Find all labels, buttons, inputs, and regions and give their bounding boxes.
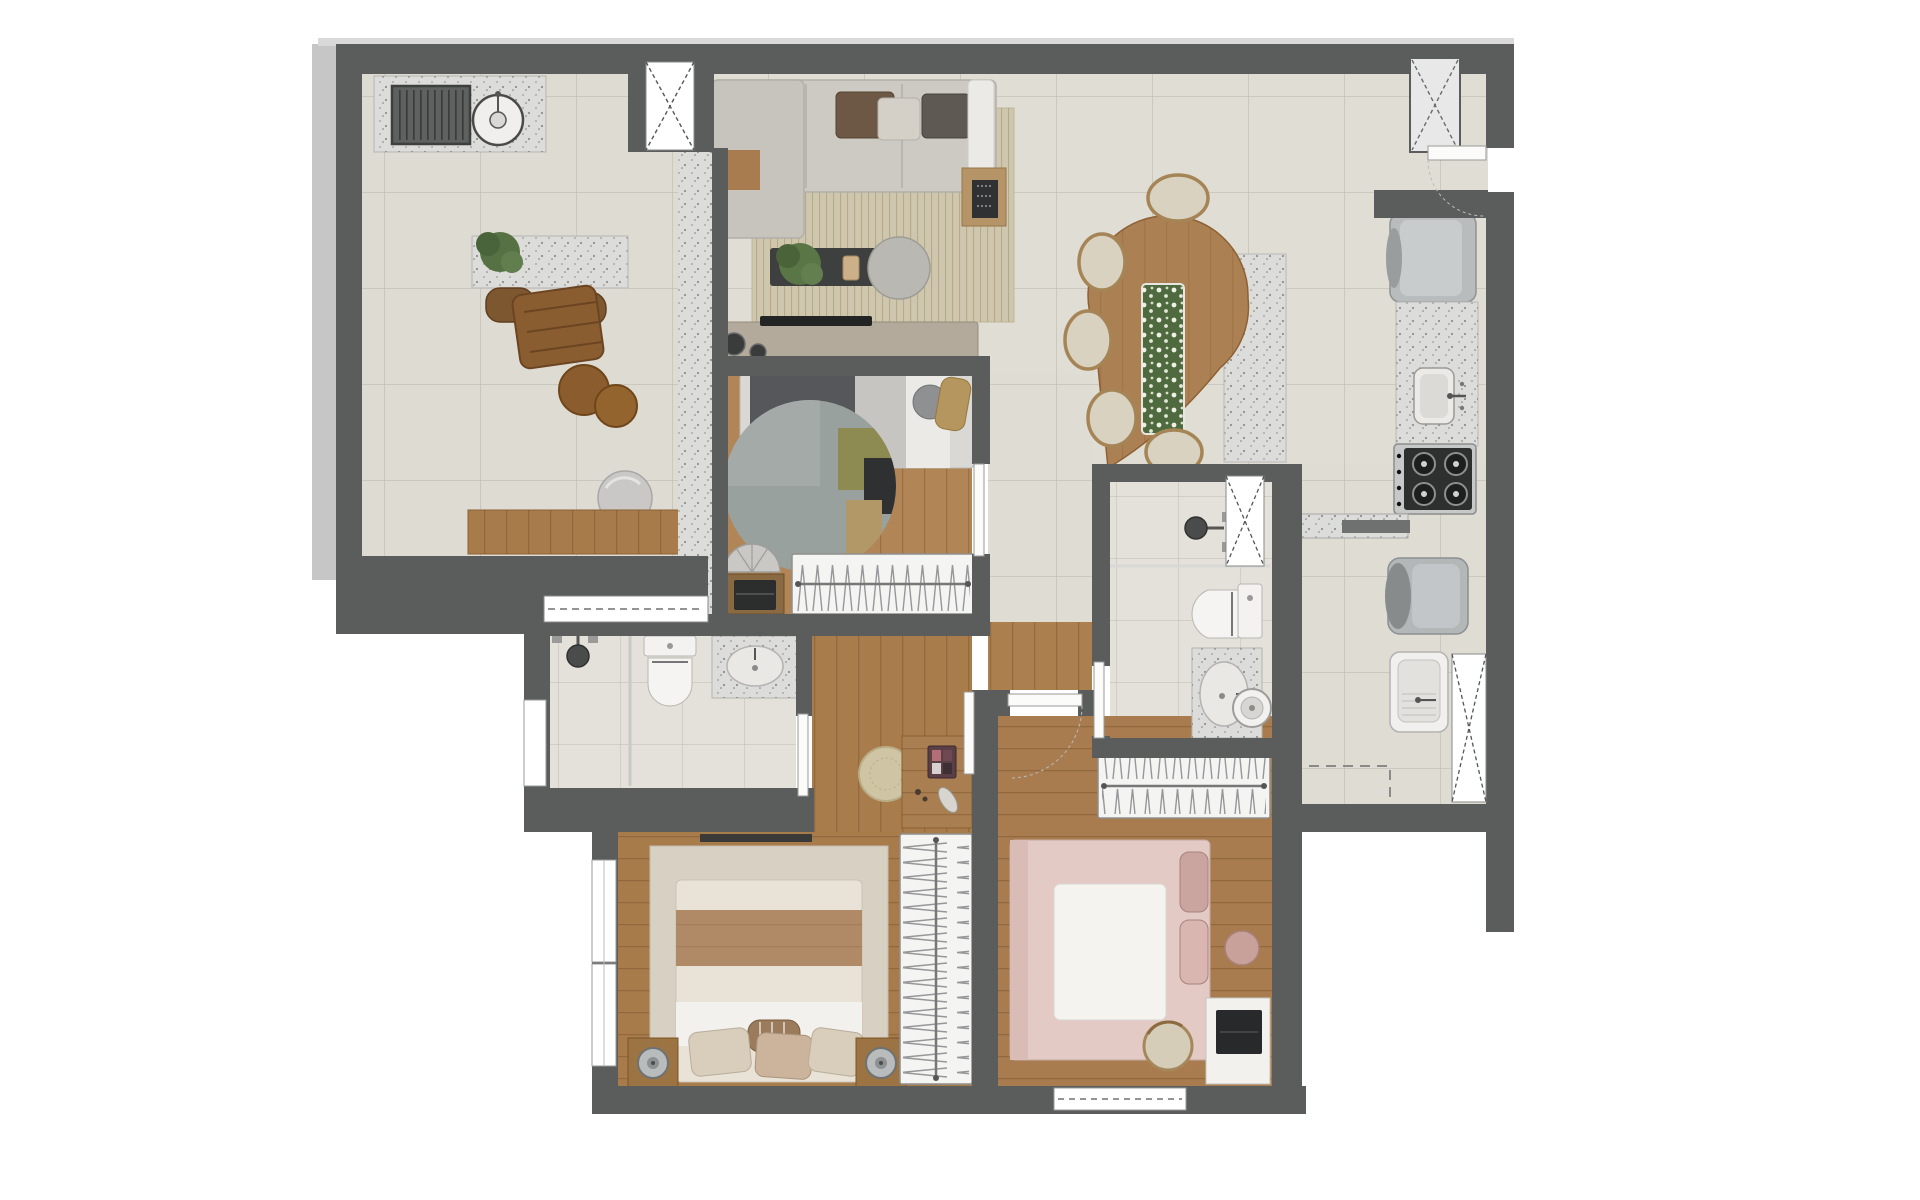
window-bathroom-1-side (524, 700, 546, 786)
laundry-tank-sink (1390, 652, 1448, 732)
bedroom2-chair (1144, 1022, 1192, 1070)
window-terrace-living (646, 62, 694, 150)
floor-plan-rendering (0, 0, 1920, 1200)
bedroom1-closet-rack (792, 554, 974, 614)
cooktop (1394, 444, 1476, 514)
refrigerator (1386, 214, 1476, 302)
window-bathroom-2 (1226, 476, 1264, 566)
door-leaf-master-suite (964, 692, 974, 774)
suite-dresser (902, 736, 972, 828)
terrace-deck-bench (468, 510, 680, 554)
terrace-armchair (511, 285, 604, 370)
floor-plan-stage (0, 0, 1920, 1200)
bbq-counter (374, 76, 546, 152)
kitchen-counter-sink (1396, 302, 1478, 446)
laundry-divider-counter (1296, 514, 1410, 538)
door-leaf-bathroom-2 (1094, 662, 1104, 738)
louver-window-bathroom-1 (544, 596, 708, 622)
master-nightstand-right (856, 1038, 906, 1088)
bedroom2-desk-laptop (1206, 998, 1270, 1084)
master-bed (676, 880, 865, 1082)
ottoman (868, 237, 930, 299)
bedroom2-closet-rack (1098, 752, 1270, 818)
bedroom2-floor-cushion (1225, 931, 1259, 965)
window-laundry (1452, 654, 1486, 802)
bathroom1-toilet (644, 636, 696, 706)
floor-hallway-tile (988, 374, 1092, 622)
utility-shaft-hatch (1410, 58, 1460, 152)
washing-machine (1385, 558, 1468, 634)
bedroom2-wall-mirror (1233, 689, 1271, 727)
tv-console (700, 316, 978, 362)
door-leaf-bedroom-1 (974, 464, 984, 556)
door-leaf-bathroom-1 (798, 714, 808, 796)
dining-table-planter (1142, 284, 1184, 434)
sofa-side-table-with-book (962, 168, 1006, 226)
bedroom1-desk-laptop (724, 574, 784, 614)
window-bedroom-2 (1054, 1088, 1186, 1110)
master-wall-shelf (700, 834, 812, 842)
master-closet-rack (900, 834, 972, 1084)
master-nightstand-left (628, 1038, 678, 1088)
bathroom1-vanity (712, 636, 804, 698)
